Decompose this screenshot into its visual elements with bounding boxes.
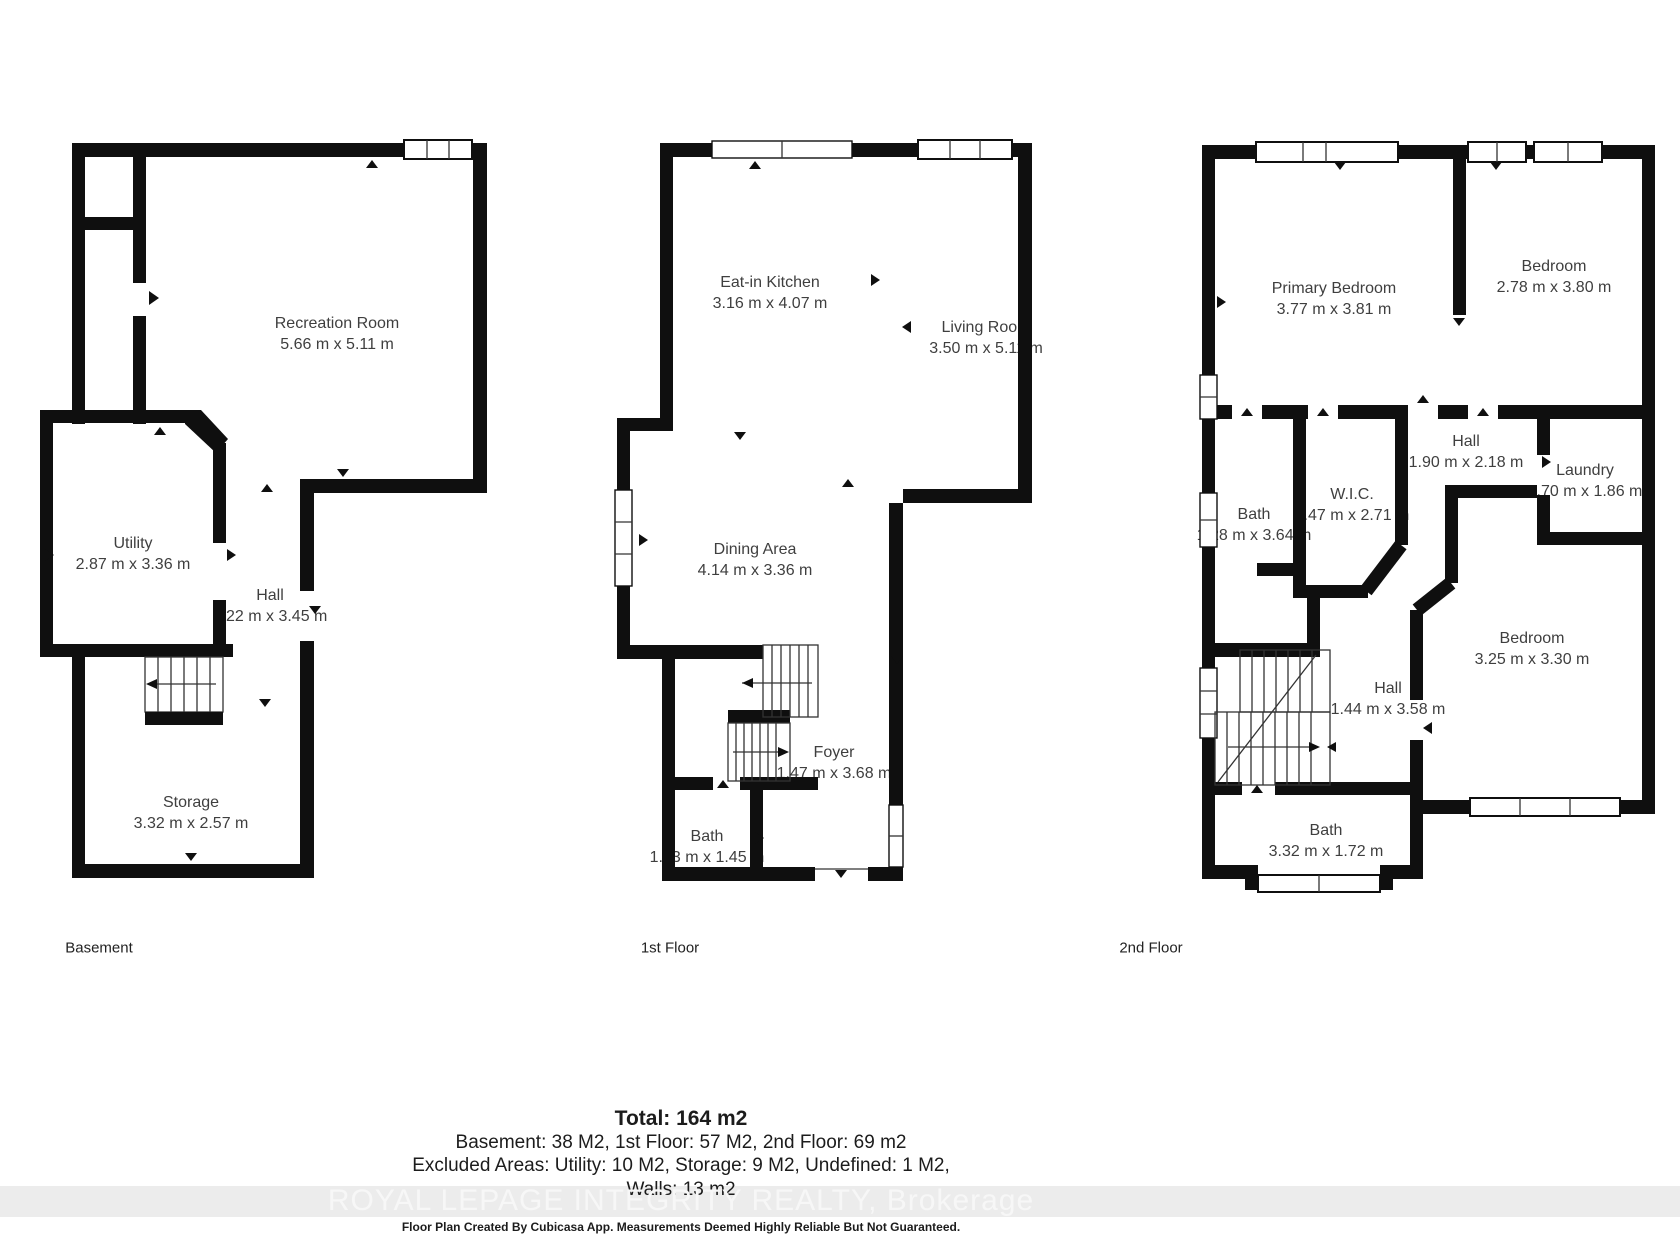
room-label-bedroom-2: Bedroom 2.78 m x 3.80 m [1497,256,1612,298]
floor-label-basement: Basement [65,940,133,957]
window [1256,142,1398,162]
room-name: Hall [1331,678,1446,699]
room-dims: 1.53 m x 1.45 m [650,847,765,868]
window [615,490,632,586]
room-name: Eat-in Kitchen [713,272,828,293]
room-label-living-room: Living Room 3.50 m x 5.11 m [929,317,1043,359]
room-label-dining-area: Dining Area 4.14 m x 3.36 m [698,539,813,581]
window [1534,142,1602,162]
room-dims: 3.50 m x 5.11 m [929,338,1043,359]
room-name: Dining Area [698,539,813,560]
room-dims: 3.25 m x 3.30 m [1475,649,1590,670]
room-name: Bedroom [1497,256,1612,277]
room-dims: 4.14 m x 3.36 m [698,560,813,581]
room-dims: 2.87 m x 3.36 m [76,554,191,575]
room-label-first-floor-bath: Bath 1.53 m x 1.45 m [650,826,765,868]
room-dims: 1.47 m x 2.71 m [1295,505,1410,526]
window [712,141,852,158]
floor-plan-drawing [0,0,1680,1260]
room-name: Bath [650,826,765,847]
room-dims: 3.16 m x 4.07 m [713,293,828,314]
room-dims: 1.28 m x 3.64 m [1197,525,1312,546]
window [1258,875,1380,892]
room-name: Utility [76,533,191,554]
floor-label-2nd-floor: 2nd Floor [1119,940,1182,957]
room-label-eat-in-kitchen: Eat-in Kitchen 3.16 m x 4.07 m [713,272,828,314]
room-label-primary-bedroom: Primary Bedroom 3.77 m x 3.81 m [1272,278,1396,320]
door-markers [45,160,484,861]
room-label-lower-bath: Bath 3.32 m x 1.72 m [1269,820,1384,862]
room-dims: 1.44 m x 3.58 m [1331,699,1446,720]
stairs [1215,650,1336,785]
room-label-wic: W.I.C. 1.47 m x 2.71 m [1295,484,1410,526]
room-label-foyer: Foyer 1.47 m x 3.68 m [777,742,892,784]
room-label-upper-bath: Bath 1.28 m x 3.64 m [1197,504,1312,546]
summary-excluded: Excluded Areas: Utility: 10 M2, Storage:… [412,1155,950,1177]
room-dims: 1.70 m x 1.86 m [1528,481,1643,502]
room-name: Recreation Room [275,313,400,334]
room-name: Hall [1409,431,1524,452]
room-name: Living Room [929,317,1043,338]
summary-floors: Basement: 38 M2, 1st Floor: 57 M2, 2nd F… [456,1132,907,1154]
room-dims: 3.77 m x 3.81 m [1272,299,1396,320]
room-label-upper-hall: Hall 1.90 m x 2.18 m [1409,431,1524,473]
watermark-text: ROYAL LEPAGE INTEGRITY REALTY, Brokerage [328,1184,1034,1218]
room-name: Bath [1269,820,1384,841]
summary-total: Total: 164 m2 [615,1107,748,1131]
window [1470,798,1620,816]
window [1200,375,1217,419]
room-name: Hall [213,585,328,606]
floor-label-1st-floor: 1st Floor [641,940,699,957]
room-label-recreation-room: Recreation Room 5.66 m x 5.11 m [275,313,400,355]
window [1468,142,1526,162]
room-name: Bath [1197,504,1312,525]
window [404,140,472,159]
window [918,140,1012,159]
room-dims: 1.47 m x 3.68 m [777,763,892,784]
room-label-lower-hall: Hall 1.44 m x 3.58 m [1331,678,1446,720]
window [889,805,903,867]
room-dims: 3.32 m x 2.57 m [134,813,249,834]
room-name: W.I.C. [1295,484,1410,505]
window [1200,668,1217,738]
room-label-bedroom-3: Bedroom 3.25 m x 3.30 m [1475,628,1590,670]
room-name: Primary Bedroom [1272,278,1396,299]
room-label-utility: Utility 2.87 m x 3.36 m [76,533,191,575]
room-dims: 5.66 m x 5.11 m [275,334,400,355]
room-dims: 1.22 m x 3.45 m [213,606,328,627]
disclaimer-text: Floor Plan Created By Cubicasa App. Meas… [402,1220,960,1234]
room-name: Laundry [1528,460,1643,481]
room-dims: 1.90 m x 2.18 m [1409,452,1524,473]
room-name: Bedroom [1475,628,1590,649]
room-label-basement-hall: Hall 1.22 m x 3.45 m [213,585,328,627]
room-dims: 2.78 m x 3.80 m [1497,277,1612,298]
room-label-laundry: Laundry 1.70 m x 1.86 m [1528,460,1643,502]
stairs [145,657,223,712]
basement-plan [40,140,487,878]
room-label-storage: Storage 3.32 m x 2.57 m [134,792,249,834]
room-name: Foyer [777,742,892,763]
room-name: Storage [134,792,249,813]
room-dims: 3.32 m x 1.72 m [1269,841,1384,862]
floor-plan-page: Recreation Room 5.66 m x 5.11 m Utility … [0,0,1680,1260]
